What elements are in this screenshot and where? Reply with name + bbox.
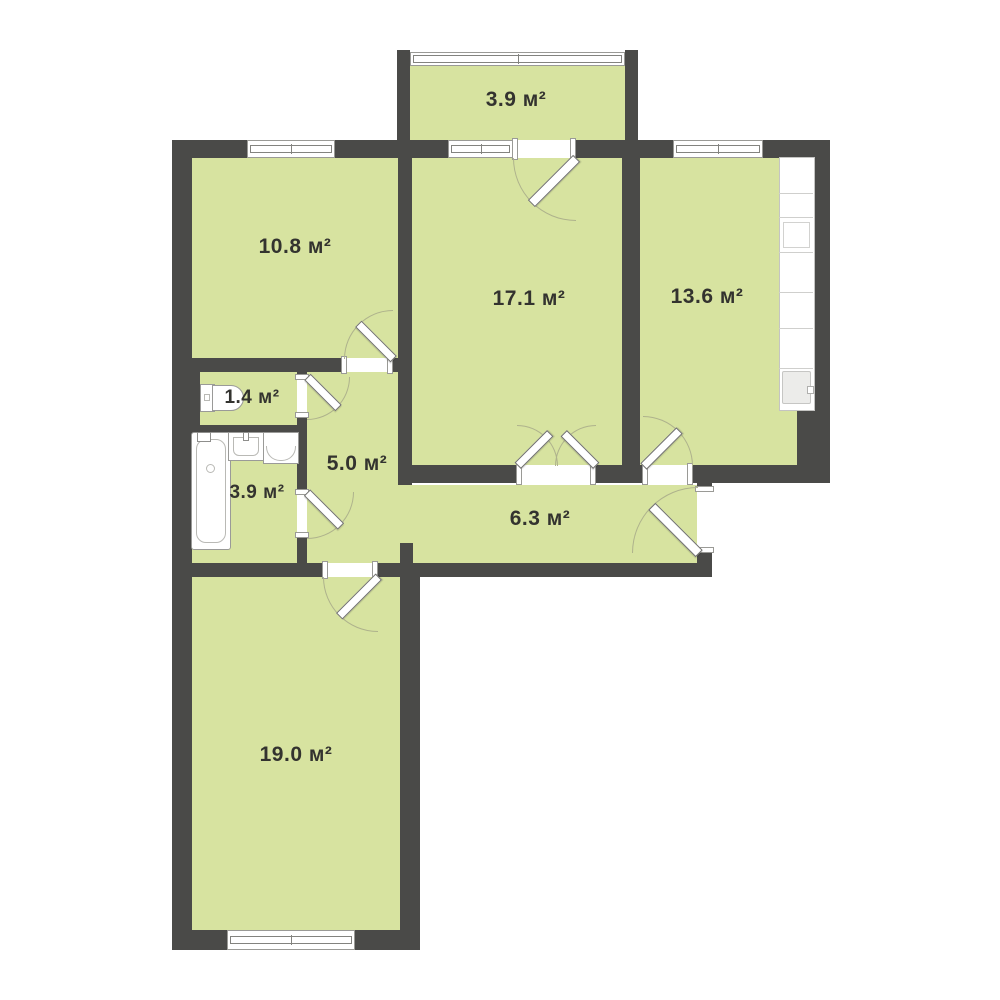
bedroom-1-window xyxy=(247,140,335,158)
wall-corridor-bottom-a xyxy=(172,563,323,577)
kitchen-door-opening xyxy=(643,465,692,483)
room-label-balcony: 3.9 м² xyxy=(486,88,547,112)
wall-left-exterior xyxy=(172,140,192,950)
living-room-double-door-opening xyxy=(517,465,595,483)
bath-sink-tap xyxy=(243,432,249,441)
living-room-window xyxy=(448,140,513,158)
bedroom-1-door-opening xyxy=(342,358,392,372)
kitchen-hob xyxy=(783,222,810,248)
toilet-button xyxy=(204,394,210,401)
kitchen-counter-divider xyxy=(779,252,813,253)
wall-corridor-top-b xyxy=(595,465,643,483)
kitchen-counter-divider xyxy=(779,193,813,194)
wall-living-kitchen xyxy=(622,158,640,465)
room-floor-living-room xyxy=(412,158,622,467)
room-label-hallway: 5.0 м² xyxy=(327,452,388,476)
floor-plan: 3.9 м² 10.8 м² 17.1 м² 13.6 м² 1.4 м² 5.… xyxy=(0,0,1000,1000)
bedroom-2-door-opening xyxy=(323,563,377,577)
wall-corridor-bottom-b xyxy=(377,563,712,577)
wall-hallway-left-a xyxy=(297,358,307,375)
kitchen-counter-divider xyxy=(779,292,813,293)
wall-bedroom2-right xyxy=(400,563,420,950)
wall-bedroom1-bottom-b xyxy=(392,358,412,372)
room-label-wc: 1.4 м² xyxy=(224,387,279,409)
room-label-living-room: 17.1 м² xyxy=(493,287,566,311)
wall-bedroom2-right-stub xyxy=(400,543,413,563)
wall-corridor-top-a xyxy=(398,465,517,483)
room-label-corridor: 6.3 м² xyxy=(510,507,571,531)
wall-bedroom1-bottom-a xyxy=(192,358,342,372)
room-label-kitchen: 13.6 м² xyxy=(671,285,744,309)
kitchen-counter-divider xyxy=(779,328,813,329)
bathtub-drain xyxy=(206,464,215,473)
balcony-window xyxy=(410,52,625,66)
wall-balcony-left xyxy=(397,50,410,142)
room-label-bedroom-1: 10.8 м² xyxy=(259,235,332,259)
kitchen-window xyxy=(673,140,763,158)
wall-balcony-right xyxy=(625,50,638,142)
wall-corridor-top-c xyxy=(692,465,830,483)
kitchen-sink-tap xyxy=(807,386,814,394)
room-label-bedroom-2: 19.0 м² xyxy=(260,743,333,767)
balcony-door-opening xyxy=(513,140,575,158)
bedroom-2-window xyxy=(227,930,355,950)
bathtub-faucet xyxy=(197,432,211,442)
bathtub-basin xyxy=(196,439,226,543)
entrance-door-opening xyxy=(697,487,712,552)
kitchen-counter-divider xyxy=(779,217,813,218)
wall-bedroom1-living xyxy=(398,158,412,485)
room-label-bathroom: 3.9 м² xyxy=(229,482,284,504)
kitchen-counter-divider xyxy=(779,368,813,369)
